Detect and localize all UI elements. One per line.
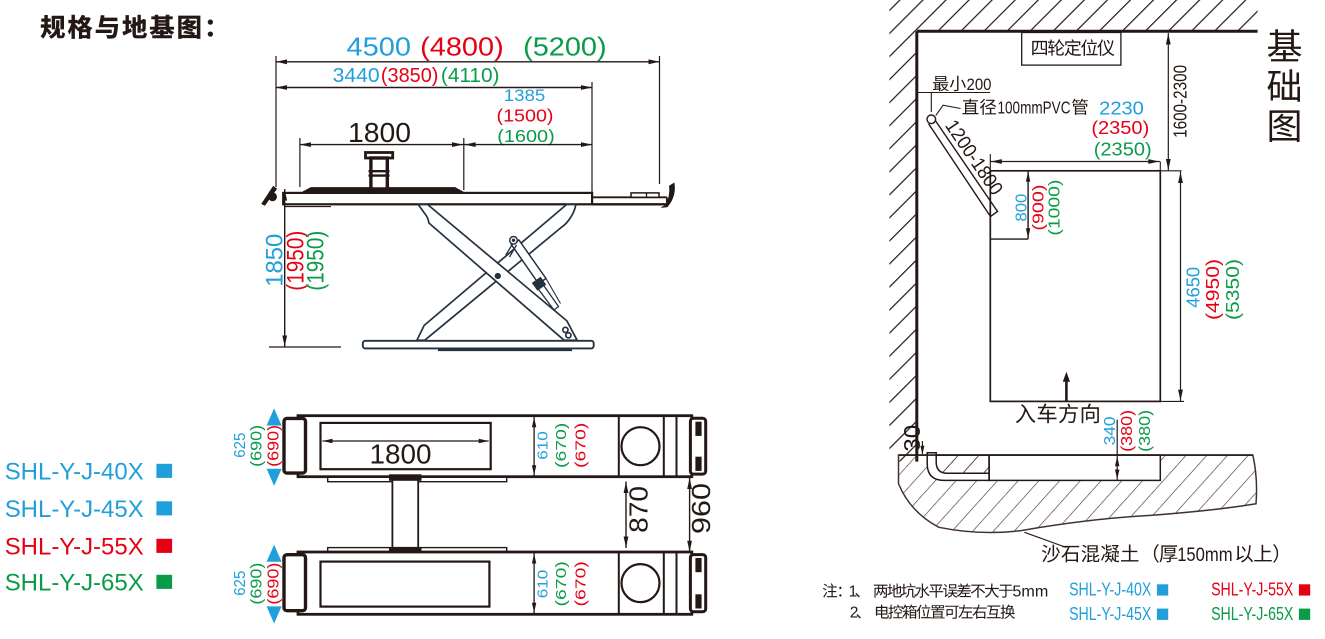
svg-text:610: 610	[534, 431, 551, 460]
svg-text:1: 1	[849, 584, 858, 601]
svg-text:(1500): (1500)	[497, 105, 554, 125]
svg-text:4650: 4650	[1184, 267, 1204, 308]
svg-text:625: 625	[232, 433, 249, 458]
svg-text:340: 340	[1102, 416, 1119, 445]
svg-text:(1600): (1600)	[497, 126, 555, 146]
svg-text:5mm: 5mm	[1012, 584, 1048, 601]
svg-text:(900): (900)	[1031, 185, 1048, 231]
svg-text:(690): (690)	[266, 563, 283, 605]
svg-text:3440: 3440	[333, 65, 380, 87]
svg-text:SHL-Y-J-45X: SHL-Y-J-45X	[5, 496, 144, 523]
svg-text:(4110): (4110)	[441, 65, 500, 87]
svg-text:(5200): (5200)	[523, 32, 607, 62]
svg-text:(670): (670)	[572, 561, 589, 606]
svg-text:1800: 1800	[348, 117, 411, 148]
svg-text:SHL-Y-J-65X: SHL-Y-J-65X	[1211, 604, 1293, 624]
svg-text:625: 625	[232, 571, 249, 596]
svg-text:610: 610	[534, 570, 551, 599]
svg-text:30: 30	[899, 425, 925, 452]
svg-text:(690): (690)	[249, 563, 266, 605]
svg-text:SHL-Y-J-40X: SHL-Y-J-40X	[1069, 580, 1151, 600]
svg-text:(2350): (2350)	[1091, 118, 1149, 138]
svg-text:(690): (690)	[266, 425, 283, 467]
svg-text:SHL-Y-J-55X: SHL-Y-J-55X	[5, 534, 144, 561]
svg-text:(380): (380)	[1119, 410, 1136, 452]
svg-text:150mm: 150mm	[1177, 544, 1232, 566]
svg-text:(690): (690)	[249, 425, 266, 467]
svg-text:SHL-Y-J-40X: SHL-Y-J-40X	[5, 459, 144, 486]
svg-text:(4950): (4950)	[1202, 259, 1223, 320]
svg-text:(380): (380)	[1137, 410, 1154, 452]
svg-text:(3850): (3850)	[381, 65, 439, 87]
svg-text:800: 800	[1013, 194, 1030, 222]
svg-text:870: 870	[623, 486, 653, 533]
svg-text:1800: 1800	[370, 438, 432, 469]
svg-text:(670): (670)	[553, 561, 570, 606]
svg-text:100mmPVC: 100mmPVC	[998, 98, 1071, 118]
svg-text:(2350): (2350)	[1094, 139, 1152, 159]
svg-text:SHL-Y-J-65X: SHL-Y-J-65X	[5, 570, 144, 597]
svg-text:2: 2	[850, 605, 859, 622]
svg-text:(5350): (5350)	[1222, 259, 1243, 320]
svg-text:(670): (670)	[572, 423, 589, 468]
svg-text:(1000): (1000)	[1047, 180, 1064, 236]
svg-text:(670): (670)	[553, 423, 570, 468]
svg-text:200: 200	[967, 75, 992, 94]
svg-text:960: 960	[686, 483, 716, 534]
svg-text:1385: 1385	[504, 86, 546, 105]
svg-text:SHL-Y-J-55X: SHL-Y-J-55X	[1211, 580, 1293, 600]
svg-text:SHL-Y-J-45X: SHL-Y-J-45X	[1069, 604, 1151, 624]
svg-text:1600-2300: 1600-2300	[1170, 65, 1190, 138]
svg-text:(1950): (1950)	[303, 231, 330, 291]
svg-text:(4800): (4800)	[420, 32, 504, 62]
svg-text:2230: 2230	[1099, 99, 1144, 119]
svg-text:4500: 4500	[347, 32, 412, 62]
